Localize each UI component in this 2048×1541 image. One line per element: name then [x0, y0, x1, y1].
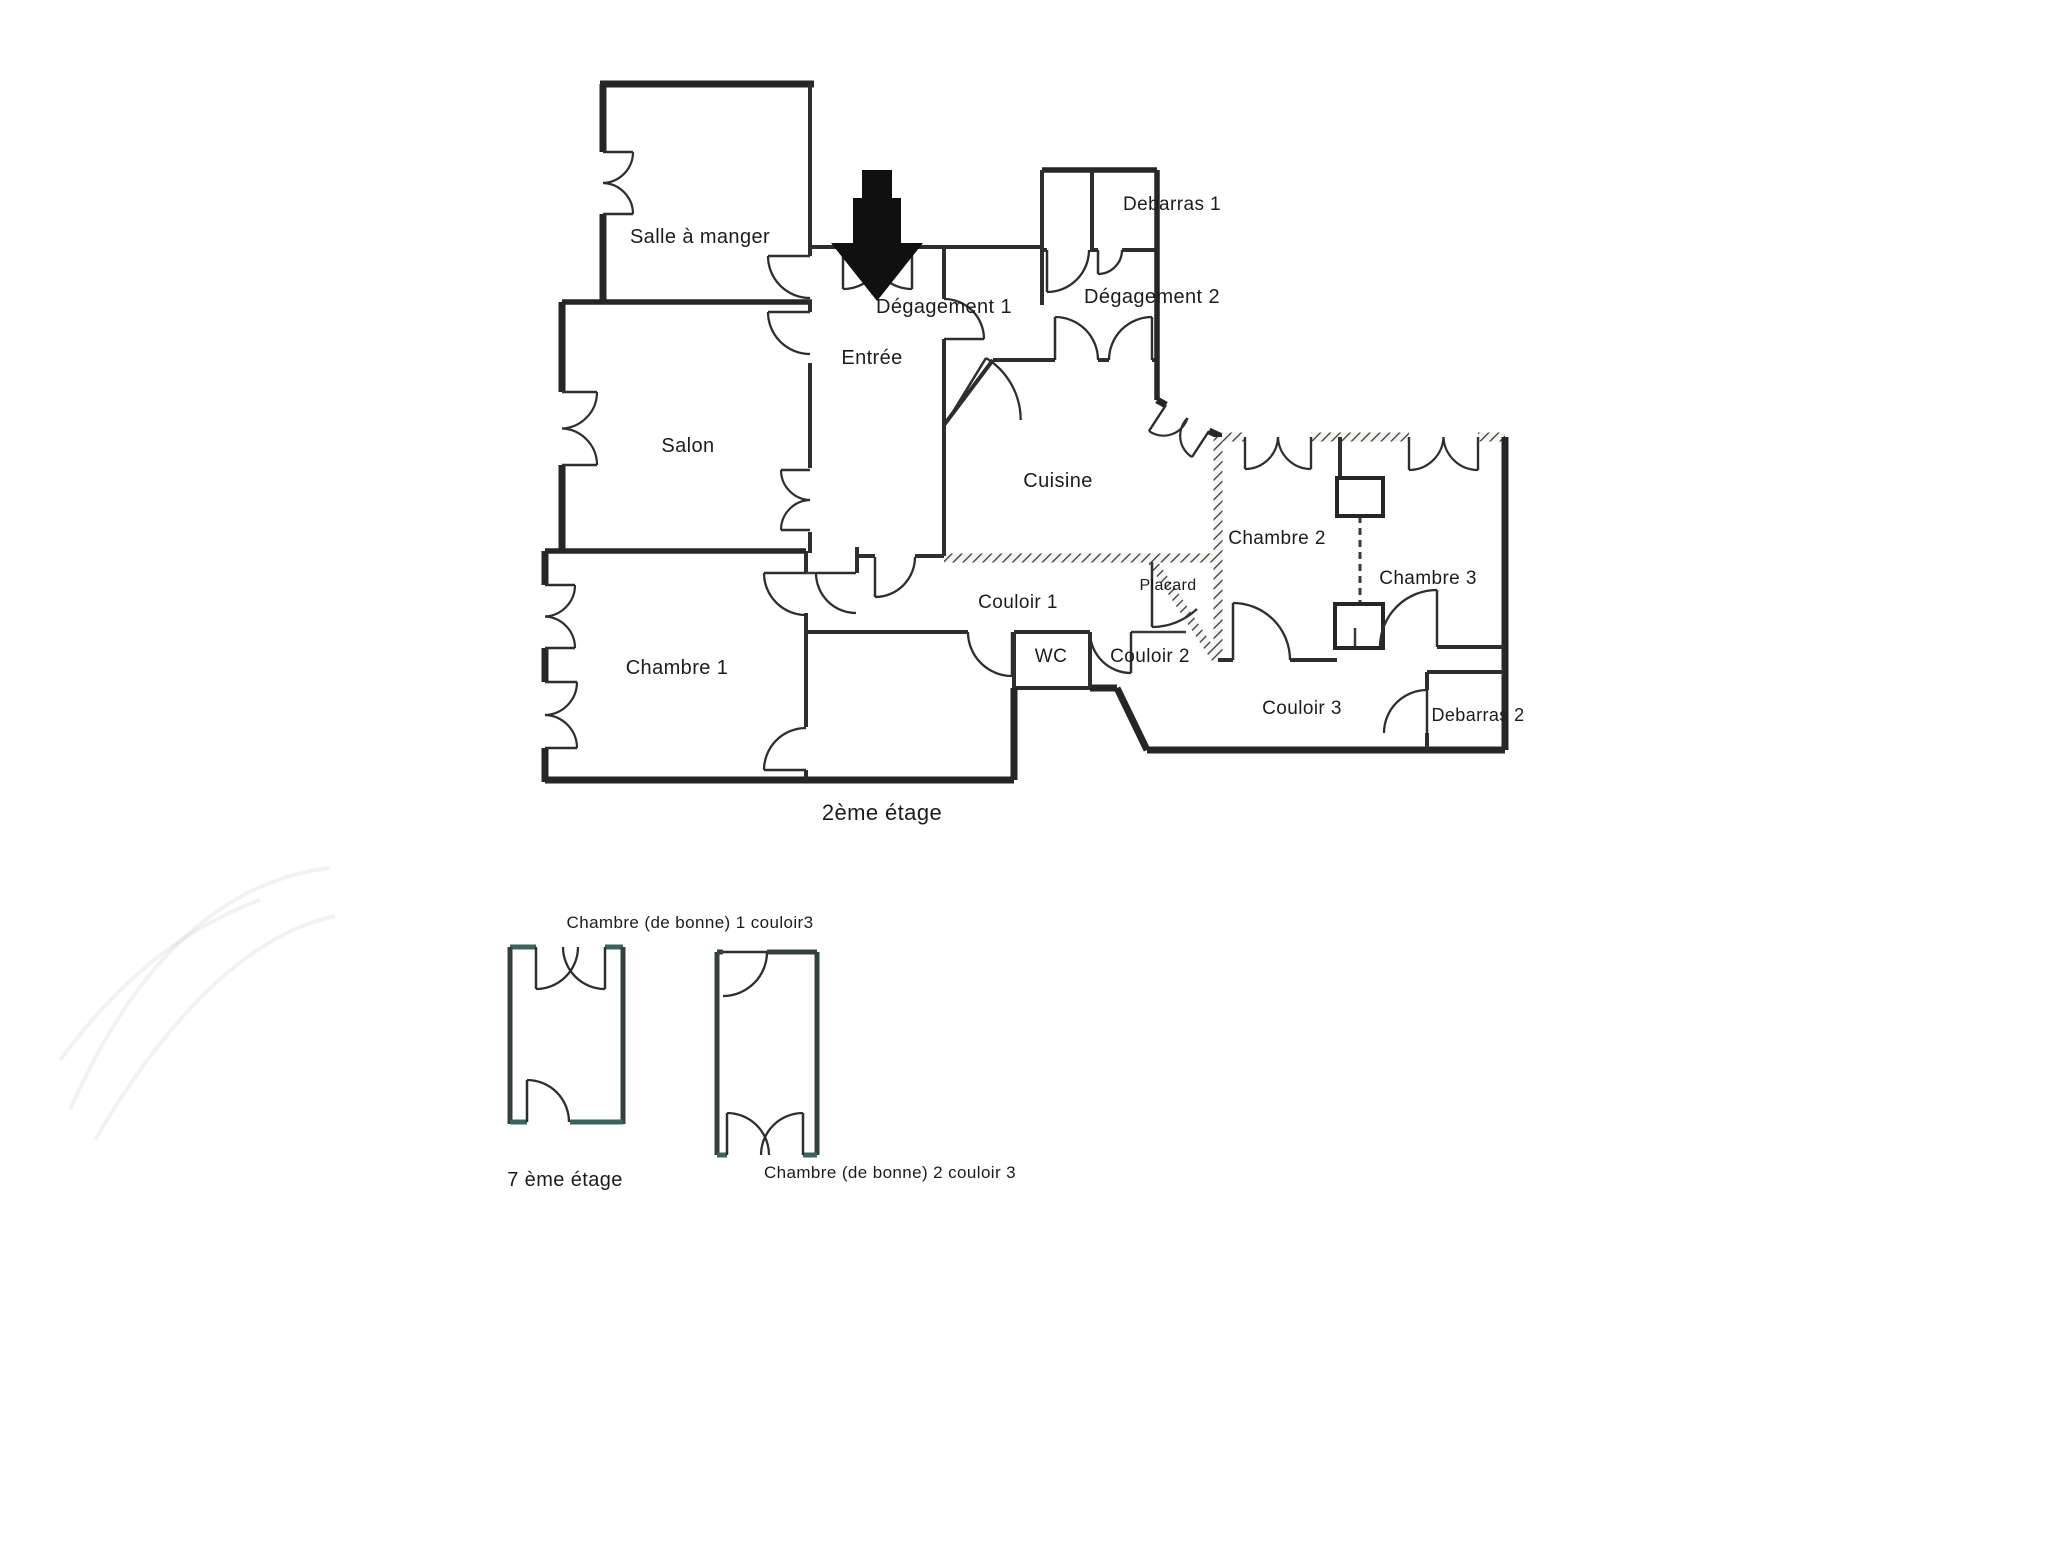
room-label-chambre-bonne-1: Chambre (de bonne) 1 couloir3 [567, 913, 814, 932]
room-label-debarras-2: Debarras 2 [1431, 705, 1524, 725]
entrance-arrow [831, 170, 923, 301]
scan-smudge [60, 900, 260, 1060]
door-swing-arc [727, 1113, 769, 1155]
door-swing-arc [527, 1080, 569, 1122]
floor-plan-page: Salle à mangerSalonChambre 1EntréeDégage… [0, 0, 2048, 1536]
room-label-chambre-3: Chambre 3 [1379, 568, 1477, 589]
wall-segment [1157, 400, 1166, 405]
window-casement-arc [1278, 437, 1311, 469]
room-label-salon: Salon [661, 435, 714, 457]
door-swing-arc [768, 312, 810, 354]
window-casement-arc [781, 470, 810, 500]
door-swing-arc [764, 728, 806, 770]
scan-smudge [70, 868, 330, 1110]
door-swing-arc [723, 952, 767, 996]
chimney-flue [1335, 604, 1383, 648]
chimney-flue [1337, 478, 1383, 516]
window-casement-arc [545, 715, 577, 748]
door-swing-arc [768, 256, 810, 298]
room-label-floor-title-2eme-etage: 2ème étage [822, 800, 942, 825]
window-casement-arc [781, 500, 810, 530]
room-label-salle-a-manger: Salle à manger [630, 226, 770, 248]
room-label-couloir-3: Couloir 3 [1262, 698, 1342, 719]
door-swing-arc [536, 947, 578, 989]
room-label-debarras-1: Debarras 1 [1123, 194, 1221, 215]
room-label-degagement-1: Dégagement 1 [876, 296, 1012, 318]
wall-segment [1209, 431, 1222, 437]
window-casement-arc [545, 617, 575, 649]
window-leaf [1192, 431, 1209, 457]
room-label-chambre-1: Chambre 1 [626, 657, 729, 679]
room-label-entree: Entrée [841, 347, 902, 369]
door-swing-arc [761, 1113, 803, 1155]
window-leaf [1149, 405, 1166, 431]
door-swing-arc [986, 358, 1021, 420]
window-casement-arc [545, 585, 575, 617]
door-leaf [948, 358, 986, 420]
door-swing-arc [764, 573, 806, 615]
door-swing-arc [1055, 317, 1098, 360]
entrance-arrow-layer [831, 170, 923, 301]
room-label-cuisine: Cuisine [1023, 470, 1093, 492]
scan-artifact-watermark [60, 868, 335, 1140]
window-casement-arc [562, 429, 597, 466]
room-label-chambre-2: Chambre 2 [1228, 528, 1326, 549]
window-casement-arc [562, 392, 597, 429]
door-swing-arc [1380, 590, 1437, 647]
window-casement-arc [1245, 437, 1278, 469]
door-swing-arc [1233, 603, 1290, 660]
door-swing-arc [816, 573, 856, 613]
window-casement-arc [545, 682, 577, 715]
room-label-chambre-bonne-2: Chambre (de bonne) 2 couloir 3 [764, 1163, 1016, 1182]
scan-smudge [95, 916, 335, 1140]
door-swing-arc [1047, 250, 1089, 292]
window-casement-arc [1444, 437, 1479, 470]
room-label-couloir-2: Couloir 2 [1110, 646, 1190, 667]
door-swing-arc [1109, 317, 1152, 360]
wall-segment [1117, 688, 1147, 750]
door-swing-arc [968, 632, 1012, 676]
window-casement-arc [603, 183, 633, 214]
door-swing-arc [1098, 250, 1122, 274]
room-label-degagement-2: Dégagement 2 [1084, 286, 1220, 308]
floor-plan-drawing: Salle à mangerSalonChambre 1EntréeDégage… [0, 0, 2048, 1536]
door-swing-arc [563, 947, 605, 989]
room-label-wc: WC [1035, 646, 1067, 667]
door-swing-arc [1384, 690, 1427, 733]
door-swing-arc [875, 557, 915, 597]
room-label-floor-title-7eme-etage: 7 ème étage [507, 1169, 623, 1191]
room-label-couloir-1: Couloir 1 [978, 592, 1058, 613]
room-label-placard: Placard [1139, 577, 1196, 594]
window-casement-arc [1409, 437, 1444, 470]
window-casement-arc [603, 152, 633, 183]
